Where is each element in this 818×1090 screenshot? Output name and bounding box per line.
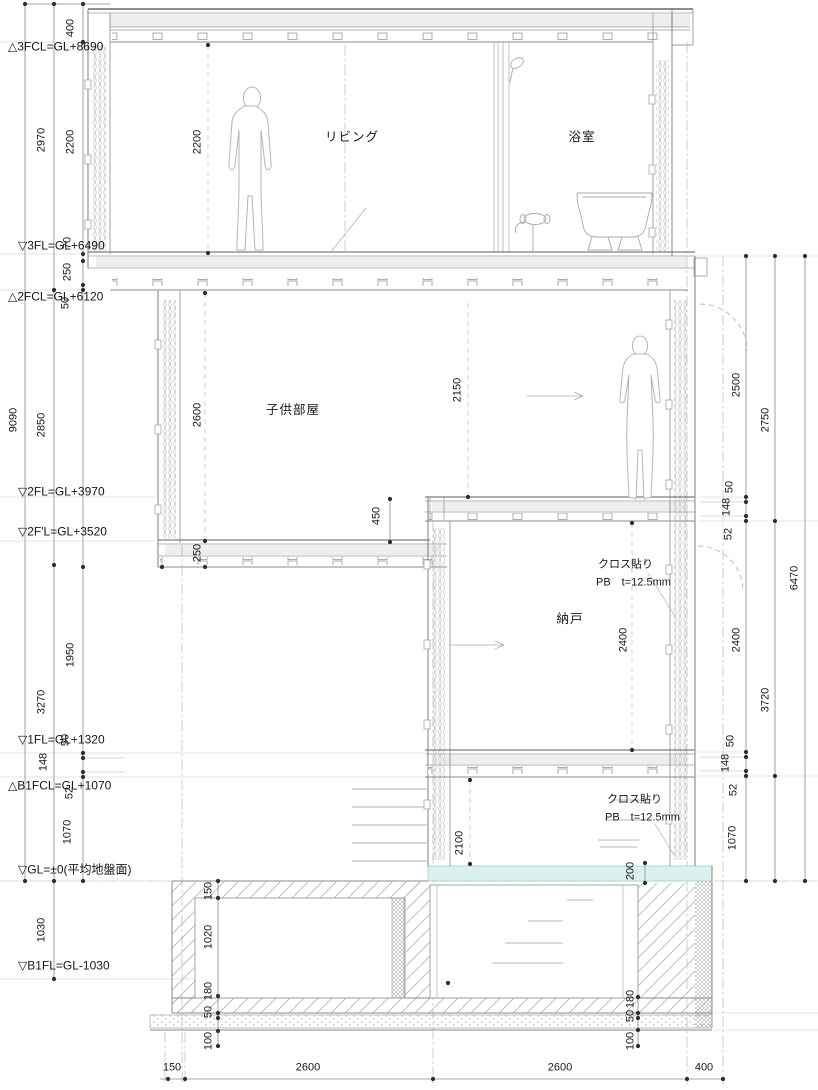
vdim-label-50-26: 50: [204, 1006, 215, 1018]
level-2fl: ▽2FL=GL+3970: [18, 485, 105, 497]
vdim-label-200-22: 200: [626, 862, 637, 880]
vdim-label-2400-37: 2400: [732, 628, 743, 652]
vdim-label-148-40: 148: [721, 754, 732, 772]
vdim-label-2200-6: 2200: [66, 130, 77, 154]
vdim-label-1070-42: 1070: [728, 826, 739, 850]
vdim-label-50-39: 50: [726, 735, 737, 747]
vdim-label-250-8: 250: [63, 263, 74, 281]
vdim-label-148-35: 148: [722, 498, 733, 516]
vdim-label-2150-19: 2150: [453, 378, 464, 402]
vdim-label-148-12: 148: [39, 753, 50, 771]
vdim-label-150-23: 150: [204, 882, 215, 900]
vdim-label-3270-3: 3270: [37, 690, 48, 714]
annotation-layer: △3FCL=GL+8690▽3FL=GL+6490△2FCL=GL+6120▽2…: [0, 0, 818, 1090]
vdim-label-180-25: 180: [204, 982, 215, 1000]
level-b1fcl: △B1FCL=GL+1070: [8, 779, 111, 791]
vdim-label-1030-4: 1030: [37, 918, 48, 942]
vdim-label-1020-24: 1020: [204, 925, 215, 949]
hdim-label-400-3: 400: [695, 1063, 713, 1074]
vdim-label-100-27: 100: [204, 1032, 215, 1050]
vdim-label-400-5: 400: [66, 19, 77, 37]
level-gl: ▽GL=±0(平均地盤面): [18, 863, 132, 875]
vdim-label-2100-21: 2100: [455, 831, 466, 855]
vdim-label-52-13: 52: [65, 787, 76, 799]
section-drawing-sheet: △3FCL=GL+8690▽3FL=GL+6490△2FCL=GL+6120▽2…: [0, 0, 818, 1090]
vdim-label-250-17: 250: [193, 544, 204, 562]
room-label-bathroom: 浴室: [568, 131, 595, 144]
hdim-label-2600-2: 2600: [548, 1063, 572, 1074]
vdim-label-50-29: 50: [626, 1010, 637, 1022]
vdim-label-1070-14: 1070: [63, 820, 74, 844]
finish-note-1-line-2: PB t=12.5mm: [596, 578, 671, 589]
finish-note-1-line-1: クロス貼り: [598, 560, 653, 571]
finish-note-2-line-1: クロス貼り: [607, 795, 662, 806]
level-2f-dash-l: ▽2F'L=GL+3520: [18, 525, 107, 537]
vdim-label-2400-20: 2400: [619, 628, 630, 652]
vdim-label-2600-16: 2600: [193, 403, 204, 427]
vdim-label-450-18: 450: [372, 507, 383, 525]
vdim-label-180-28: 180: [626, 990, 637, 1008]
vdim-label-2750-32: 2750: [761, 408, 772, 432]
vdim-label-50-11: 50: [61, 734, 72, 746]
vdim-label-70-7: 70: [63, 237, 74, 249]
level-2fcl: △2FCL=GL+6120: [8, 290, 103, 302]
vdim-label-50-9: 50: [61, 297, 72, 309]
vdim-label-2500-31: 2500: [732, 373, 743, 397]
vdim-label-100-30: 100: [626, 1032, 637, 1050]
vdim-label-3720-38: 3720: [761, 688, 772, 712]
vdim-label-9090-0: 9090: [9, 408, 20, 432]
vdim-label-52-41: 52: [729, 784, 740, 796]
room-label-storage: 納戸: [556, 613, 583, 626]
finish-note-2-line-2: PB t=12.5mm: [605, 813, 680, 824]
vdim-label-2970-1: 2970: [37, 128, 48, 152]
hdim-label-150-0: 150: [163, 1063, 181, 1074]
room-label-living: リビング: [325, 131, 379, 144]
vdim-label-6470-33: 6470: [790, 566, 801, 590]
level-b1fl: ▽B1FL=GL-1030: [18, 959, 110, 971]
vdim-label-2200-15: 2200: [193, 130, 204, 154]
vdim-label-1950-10: 1950: [66, 643, 77, 667]
room-label-kids-room: 子供部屋: [266, 404, 320, 417]
hdim-label-2600-1: 2600: [296, 1063, 320, 1074]
level-3fcl: △3FCL=GL+8690: [8, 40, 103, 52]
vdim-label-52-36: 52: [724, 528, 735, 540]
vdim-label-2850-2: 2850: [37, 413, 48, 437]
vdim-label-50-34: 50: [725, 481, 736, 493]
